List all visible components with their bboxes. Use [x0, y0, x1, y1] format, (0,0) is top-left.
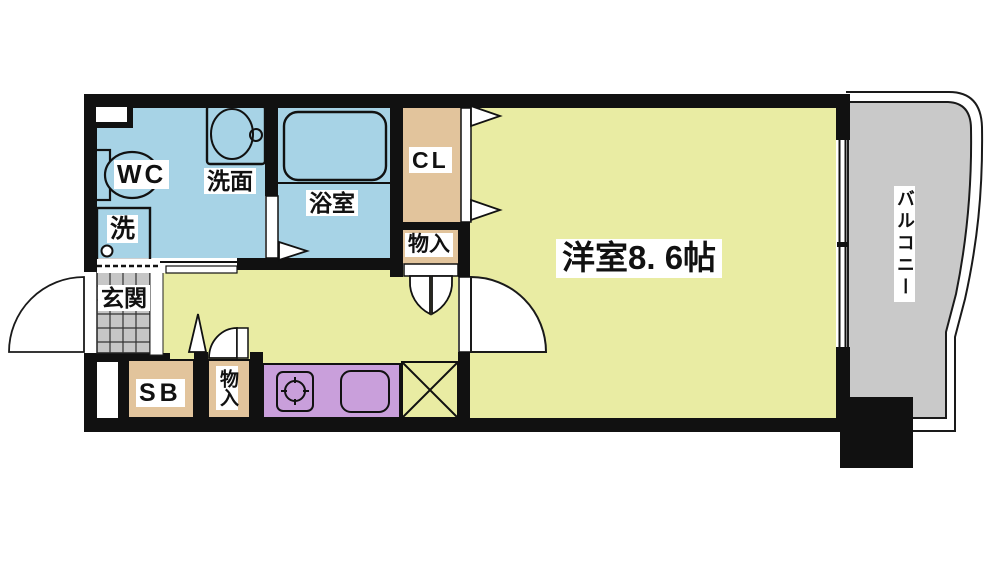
floor-plan-canvas: WC 洗面 浴室 洗 CL 物入 玄関 SB 物入 洋室8. 6帖 バルコニー: [0, 0, 1000, 562]
label-storage-lower: 物入: [216, 366, 238, 410]
room-door-leaf: [459, 277, 471, 352]
wall-storage-kitchen-column: [250, 352, 263, 418]
label-wc: WC: [114, 160, 169, 189]
label-balcony: バルコニー: [894, 186, 915, 302]
pipe-space-notch: [96, 107, 127, 122]
wall-hall-divider: [237, 258, 390, 270]
label-storage-upper: 物入: [405, 233, 453, 257]
label-washer: 洗: [107, 215, 138, 243]
window-center-tick: [837, 242, 848, 247]
label-washstand: 洗面: [204, 168, 256, 194]
label-entrance: 玄関: [98, 285, 150, 311]
wall-left: [84, 94, 97, 432]
wall-storage-right: [458, 222, 470, 277]
closet-folding-door-strip: [461, 108, 471, 222]
floor-plan-drawing: [0, 0, 1000, 562]
pillar-block: [840, 397, 913, 468]
storage-lower-door-leaf: [237, 328, 248, 358]
ps-white-box: [97, 362, 118, 418]
label-shoe-box: SB: [136, 379, 185, 407]
sliding-door-panel: [166, 266, 237, 273]
wall-bath-closet: [390, 108, 403, 277]
storage-upper-door-frame: [404, 264, 458, 276]
label-bathroom: 浴室: [306, 190, 358, 216]
entrance-door-opening: [84, 272, 97, 353]
bath-door-leaf: [266, 196, 278, 258]
entrance-door-arc: [9, 277, 84, 352]
label-western-room: 洋室8. 6帖: [556, 239, 722, 278]
entrance-frame-strip: [150, 272, 163, 355]
wall-right-upper: [836, 94, 850, 140]
wall-washstand-bath: [265, 108, 278, 196]
wall-ps-sb-column: [118, 362, 128, 418]
washer-faucet-icon: [102, 246, 113, 257]
label-closet: CL: [409, 147, 452, 173]
wall-sb-storage-column: [194, 352, 208, 418]
wall-bottom: [84, 418, 850, 432]
balcony-window: [837, 140, 848, 347]
wall-top: [84, 94, 850, 108]
wall-room-lower: [458, 352, 470, 418]
